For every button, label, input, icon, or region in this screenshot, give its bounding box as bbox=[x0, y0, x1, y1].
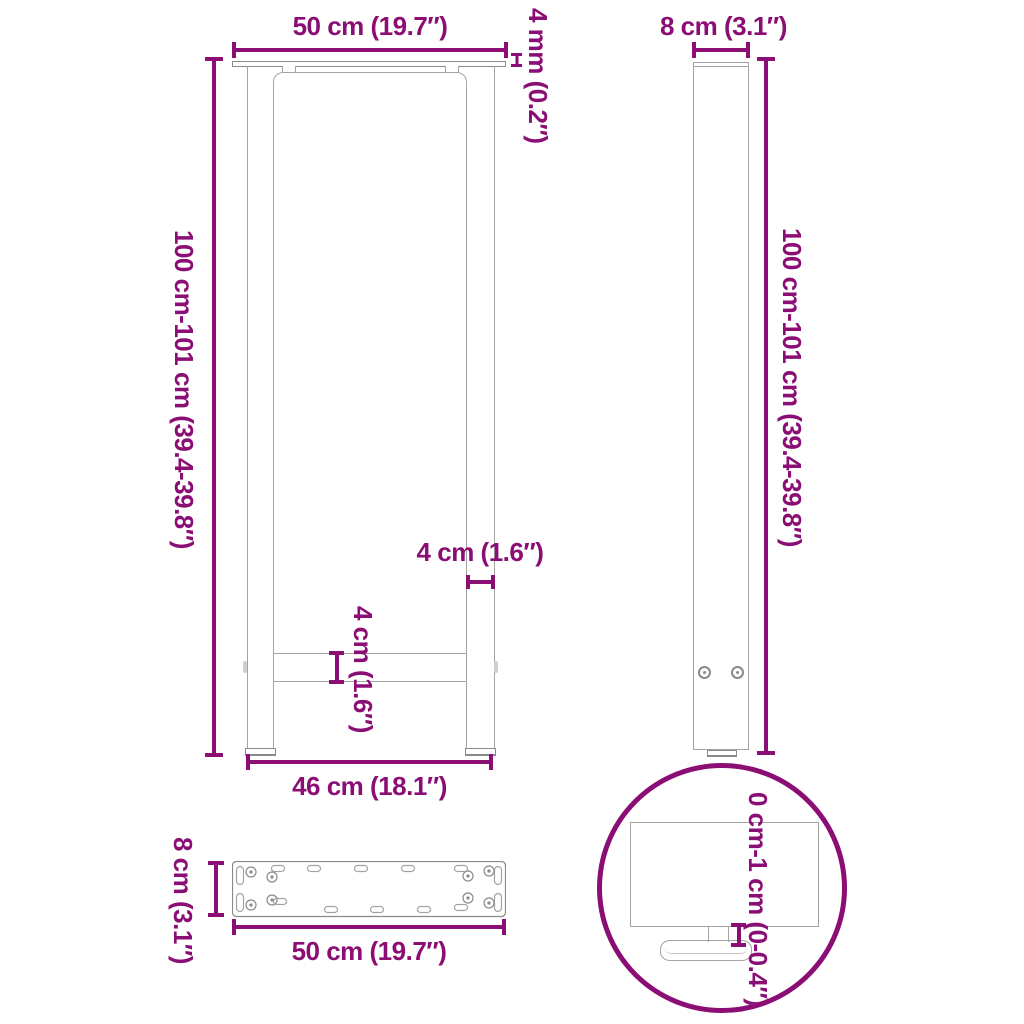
side-screw-right bbox=[731, 666, 744, 679]
front-top-width-label: 50 cm (19.7″) bbox=[232, 11, 508, 42]
front-plate-thickness-marker bbox=[511, 53, 522, 67]
front-top-width-dim-line bbox=[232, 42, 508, 58]
side-leg-column bbox=[693, 62, 749, 750]
front-height-label: 100 cm-101 cm (39.4-39.8″) bbox=[168, 230, 199, 549]
product-dimension-diagram: 50 cm (19.7″) 100 cm-101 cm (39.4-39.8″)… bbox=[0, 0, 1024, 1024]
side-height-label: 100 cm-101 cm (39.4-39.8″) bbox=[776, 228, 807, 547]
plate-outline-drawing bbox=[232, 861, 506, 918]
front-weld-mark-left bbox=[243, 661, 247, 673]
front-crossbar-height-marker bbox=[329, 651, 344, 684]
front-height-dim-line bbox=[205, 57, 223, 757]
plate-depth-marker bbox=[208, 861, 224, 917]
front-crossbar-height-label: 4 cm (1.6″) bbox=[347, 606, 378, 733]
side-depth-label: 8 cm (3.1″) bbox=[660, 11, 784, 42]
front-weld-mark-right bbox=[494, 661, 498, 673]
front-left-upright-outer-edge bbox=[247, 66, 248, 748]
plate-width-label: 50 cm (19.7″) bbox=[232, 936, 506, 967]
side-depth-dim-line bbox=[692, 42, 750, 58]
plate-depth-label: 8 cm (3.1″) bbox=[167, 837, 198, 964]
front-right-upright-outer-edge bbox=[494, 66, 495, 748]
side-height-dim-line bbox=[757, 57, 775, 755]
detail-leg-bottom bbox=[630, 822, 819, 927]
detail-circle: 0 cm-1 cm (0-0.4″) bbox=[597, 763, 847, 1013]
front-plate-thickness-label: 4 mm (0.2″) bbox=[522, 8, 553, 144]
side-plate-edge-line bbox=[694, 66, 748, 67]
front-bottom-width-dim-line bbox=[246, 754, 493, 770]
plate-width-dim-line bbox=[232, 919, 506, 935]
front-top-plate bbox=[232, 61, 506, 67]
side-foot bbox=[707, 750, 737, 757]
front-bottom-width-label: 46 cm (18.1″) bbox=[246, 771, 493, 802]
side-screw-left bbox=[698, 666, 711, 679]
detail-adjust-range-label: 0 cm-1 cm (0-0.4″) bbox=[742, 792, 773, 1006]
front-upright-width-dim-line bbox=[466, 575, 495, 589]
front-upright-width-label: 4 cm (1.6″) bbox=[410, 537, 550, 568]
